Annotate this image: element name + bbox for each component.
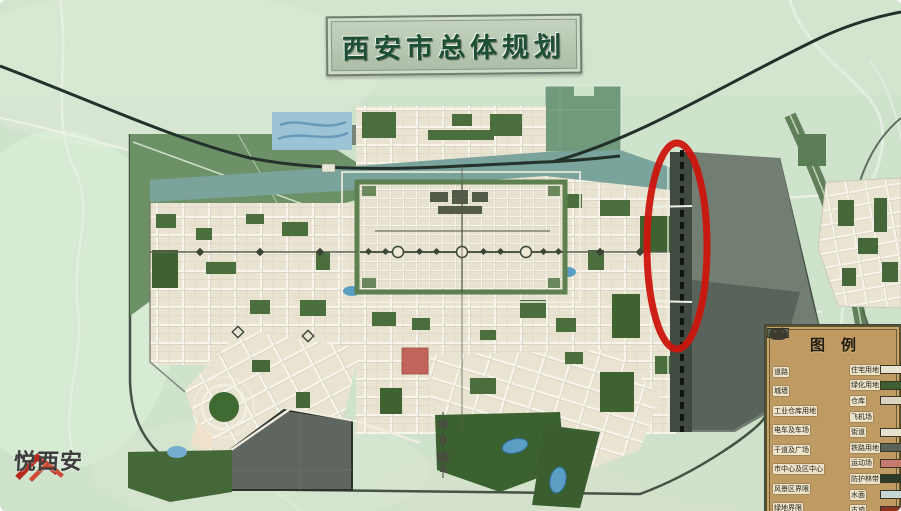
legend-label: 城墙	[773, 386, 789, 396]
legend-item: 运动场	[850, 456, 901, 472]
legend-label: 绿化用地	[850, 380, 880, 390]
legend-title: 图例	[787, 334, 895, 355]
crenellated-blob-icon	[824, 462, 847, 476]
legend-item: 防护林带	[850, 471, 901, 487]
legend-swatch	[880, 396, 901, 405]
legend-right-column: 住宅用地绿化用地仓库飞机场街道铁路用地运动场防护林带水面古迹	[850, 362, 901, 511]
legend-swatch	[880, 506, 901, 511]
legend-swatch	[880, 428, 901, 437]
legend-item: 城墙	[773, 382, 847, 402]
legend-item: 住宅用地	[850, 362, 901, 378]
legend-label: 铁路用地	[850, 443, 880, 453]
legend-item: 市中心及区中心	[773, 460, 847, 480]
watermark-text: 悦西安	[13, 444, 84, 476]
legend-item: 工业仓库用地	[773, 401, 847, 421]
wall-line-icon	[824, 384, 847, 398]
legend-label: 电车及车场	[773, 425, 810, 435]
legend-item: 仓库	[850, 393, 901, 409]
legend-left-column: 道路城墙工业仓库用地电车及车场干道及广场市中心及区中心风景区界限绿地界限	[773, 362, 847, 511]
legend-label: 工业仓库用地	[773, 406, 817, 416]
dark-swatch-icon	[824, 404, 847, 418]
legend-item: 水面	[850, 487, 901, 503]
watermark: 悦西安	[14, 444, 83, 476]
road-fork-icon	[824, 365, 847, 379]
walled-old-city	[342, 172, 580, 302]
legend-item: 道路	[773, 362, 847, 382]
legend-item: 飞机场	[850, 409, 901, 425]
star-icon	[824, 443, 847, 457]
legend-item: 古迹	[850, 502, 901, 511]
legend-item: 街道	[850, 424, 901, 440]
legend-item: 干道及广场	[773, 440, 847, 460]
legend-swatch	[880, 381, 901, 390]
pole-icon	[824, 423, 847, 437]
legend-swatch	[880, 459, 901, 468]
historic-red-parcel	[402, 348, 428, 374]
legend-label: 住宅用地	[850, 365, 880, 375]
legend-panel: 图例 道路城墙工业仓库用地电车及车场干道及广场市中心及区中心风景区界限绿地界限 …	[765, 325, 901, 511]
legend-label: 市中心及区中心	[773, 464, 824, 474]
legend-swatch	[880, 365, 901, 374]
legend-label: 绿地界限	[773, 503, 803, 511]
legend-swatch	[880, 474, 901, 483]
legend-label: 运动场	[850, 458, 873, 468]
legend-swatch	[880, 443, 901, 452]
legend-item: 绿地界限	[773, 499, 847, 511]
legend-label: 仓库	[850, 396, 866, 406]
legend-label: 道路	[773, 367, 789, 377]
palace-complex	[430, 190, 488, 214]
north-lake	[272, 112, 352, 150]
legend-swatch	[880, 490, 901, 499]
outline-blob-icon	[824, 482, 847, 496]
legend-label: 街道	[850, 427, 866, 437]
map-title-plaque: 西安市总体规划	[326, 14, 583, 77]
legend-label: 飞机场	[850, 412, 873, 422]
legend-label: 水面	[850, 490, 866, 500]
legend-label: 干道及广场	[773, 445, 810, 455]
legend-item: 绿化用地	[850, 378, 901, 394]
map-screenshot: 西安市总体规划 图例 道路城墙工业仓库用地电车及车场干道及广场市中心及区中心风景…	[0, 0, 901, 511]
map-title: 西安市总体规划	[342, 24, 566, 65]
legend-item: 风景区界限	[773, 479, 847, 499]
legend-label: 古迹	[850, 505, 866, 511]
legend-label: 风景区界限	[773, 484, 810, 494]
outline-shape-icon	[824, 501, 847, 511]
legend-item: 铁路用地	[850, 440, 901, 456]
legend-label: 防护林带	[850, 474, 880, 484]
legend-item: 电车及车场	[773, 421, 847, 441]
